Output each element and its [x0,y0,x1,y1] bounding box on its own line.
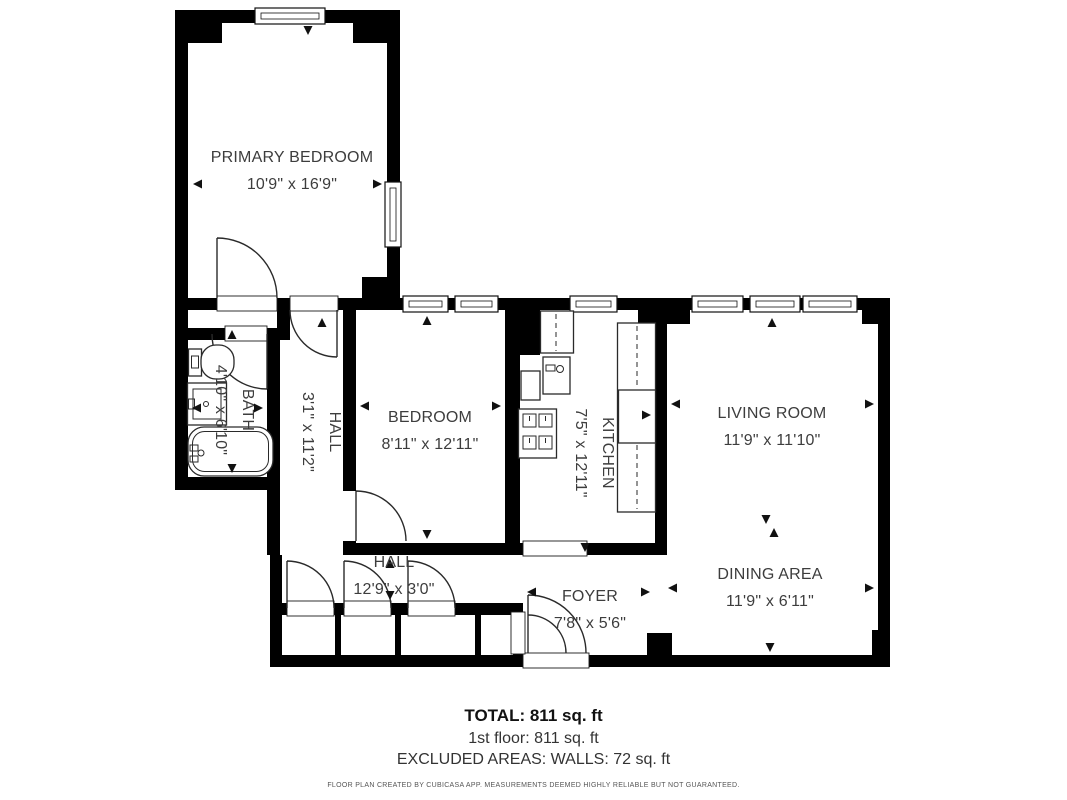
window [692,296,743,312]
room-label-hall-vertical: HALL 3'1" x 11'2" [294,392,348,472]
room-label-bath: BATH 4'10" x 6'10" [207,365,261,455]
room-label-primary-bedroom: PRIMARY BEDROOM 10'9" x 16'9" [211,144,373,198]
hall-top-door [290,310,337,357]
room-dimensions: 12'9" x 3'0" [353,576,434,603]
room-dimensions: 10'9" x 16'9" [211,171,373,198]
room-dimensions: 4'10" x 6'10" [207,365,234,455]
floor-plan-canvas: PRIMARY BEDROOM 10'9" x 16'9" BATH 4'10"… [0,0,1067,800]
window [385,182,401,247]
floor-plan-drawing [0,0,1067,800]
room-name: BEDROOM [381,404,478,431]
bedroom-door [356,491,406,541]
window [455,296,498,312]
room-name: HALL [353,549,434,576]
room-dimensions: 7'8" x 5'6" [554,610,626,637]
room-dimensions: 11'9" x 6'11" [717,588,822,615]
total-area: TOTAL: 811 sq. ft [0,706,1067,726]
room-name: PRIMARY BEDROOM [211,144,373,171]
room-label-hall: HALL 12'9" x 3'0" [353,549,434,603]
first-floor-area: 1st floor: 811 sq. ft [0,730,1067,748]
window [570,296,617,312]
window [750,296,800,312]
room-name: BATH [234,365,261,455]
kitchen-counter-top [541,311,574,353]
excluded-areas: EXCLUDED AREAS: WALLS: 72 sq. ft [0,751,1067,769]
area-summary: TOTAL: 811 sq. ft 1st floor: 811 sq. ft … [0,706,1067,789]
room-label-dining-area: DINING AREA 11'9" x 6'11" [717,561,822,615]
room-label-kitchen: KITCHEN 7'5" x 12'11" [567,408,621,497]
room-name: FOYER [554,583,626,610]
room-name: LIVING ROOM [718,400,827,427]
room-label-living-room: LIVING ROOM 11'9" x 11'10" [718,400,827,454]
room-dimensions: 8'11" x 12'11" [381,431,478,458]
room-name: DINING AREA [717,561,822,588]
primary-bedroom-door [217,238,277,298]
window [403,296,448,312]
kitchen-sink-icon [521,357,570,400]
room-dimensions: 7'5" x 12'11" [567,408,594,497]
kitchen-counter-right [618,323,656,512]
room-name: HALL [321,392,348,472]
stove-icon [519,409,557,458]
room-dimensions: 11'9" x 11'10" [718,427,827,454]
room-name: KITCHEN [594,408,621,497]
window [803,296,857,312]
room-label-foyer: FOYER 7'8" x 5'6" [554,583,626,637]
window [255,8,325,24]
room-label-bedroom: BEDROOM 8'11" x 12'11" [381,404,478,458]
disclaimer-text: FLOOR PLAN CREATED BY CUBICASA APP. MEAS… [0,782,1067,789]
room-dimensions: 3'1" x 11'2" [294,392,321,472]
